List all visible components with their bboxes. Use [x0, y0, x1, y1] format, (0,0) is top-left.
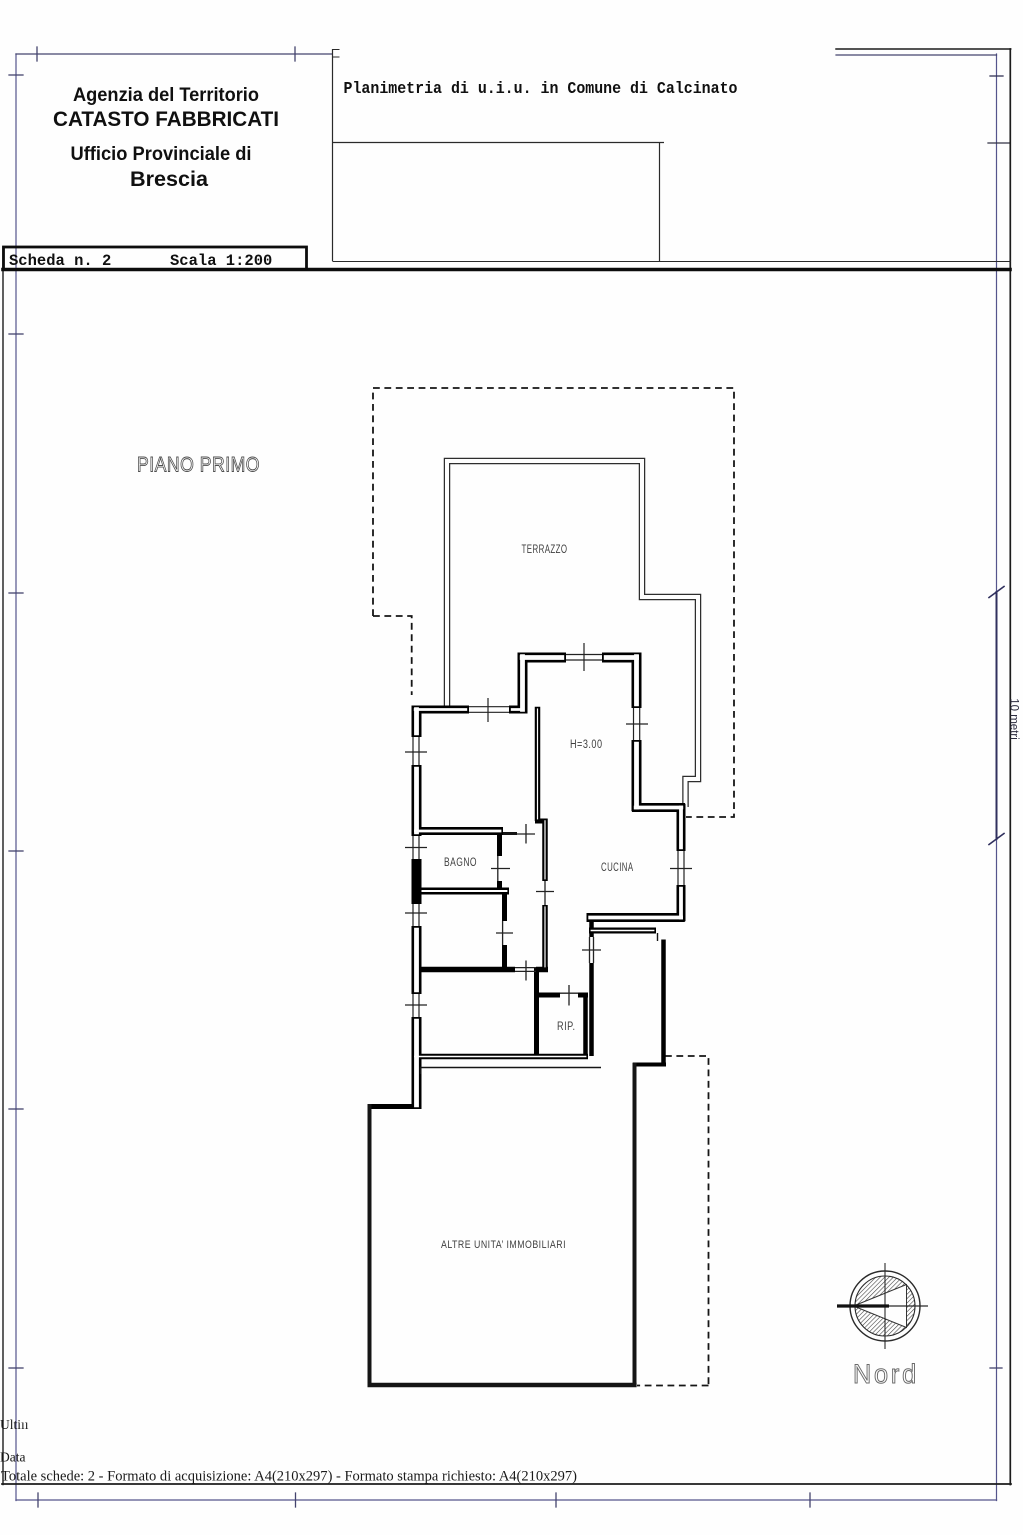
svg-text:Scala 1:200: Scala 1:200	[170, 252, 272, 270]
svg-text:10 metri: 10 metri	[1008, 698, 1020, 740]
svg-text:Agenzia del Territorio: Agenzia del Territorio	[73, 84, 259, 106]
svg-text:RIP.: RIP.	[557, 1021, 576, 1033]
svg-text:BAGNO: BAGNO	[444, 857, 477, 869]
svg-text:CATASTO FABBRICATI: CATASTO FABBRICATI	[53, 107, 279, 131]
svg-text:CUCINA: CUCINA	[601, 862, 634, 874]
svg-text:Data: Data	[0, 1450, 25, 1465]
svg-text:Ufficio Provinciale di: Ufficio Provinciale di	[71, 143, 252, 165]
svg-text:H=3.00: H=3.00	[570, 739, 603, 751]
svg-text:Ultiıı: Ultiıı	[0, 1417, 29, 1432]
svg-text:Totale schede: 2 - Formato di: Totale schede: 2 - Formato di acquisizio…	[1, 1469, 577, 1485]
svg-text:Planimetria di u.i.u. in Comun: Planimetria di u.i.u. in Comune di Calci…	[344, 79, 738, 98]
svg-text:TERRAZZO: TERRAZZO	[522, 544, 568, 556]
svg-text:ALTRE UNITA’ IMMOBILIARI: ALTRE UNITA’ IMMOBILIARI	[441, 1239, 566, 1251]
svg-text:Scheda n. 2: Scheda n. 2	[9, 252, 111, 270]
svg-text:PIANO PRIMO: PIANO PRIMO	[137, 454, 260, 477]
svg-text:Brescia: Brescia	[130, 168, 208, 191]
svg-text:Nord: Nord	[853, 1359, 919, 1389]
